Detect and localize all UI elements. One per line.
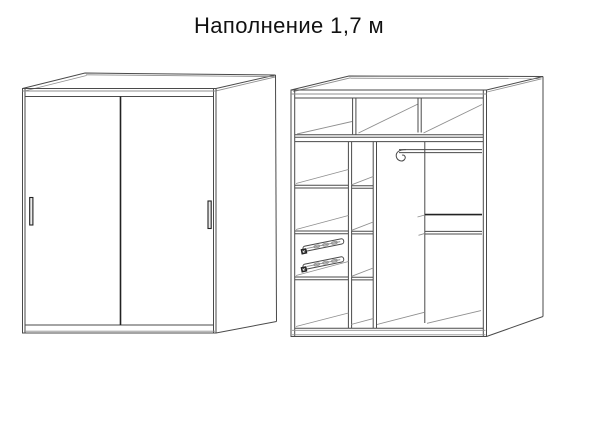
sliding-door-right <box>121 97 214 326</box>
hanging-rod <box>396 150 482 161</box>
top-divider-1 <box>353 98 356 135</box>
floor-lines <box>296 311 481 327</box>
diagram-canvas: Наполнение 1,7 м <box>0 0 600 422</box>
sliding-door-left <box>25 97 121 326</box>
rod-hook <box>396 150 406 161</box>
open-wardrobe-carcass <box>291 90 487 337</box>
open-wardrobe <box>291 76 543 337</box>
left-shelf-1 <box>295 170 349 189</box>
middle-shelf-3 <box>352 268 374 280</box>
middle-shelf-1 <box>352 177 374 189</box>
top-divider-2 <box>418 98 421 133</box>
closed-wardrobe-front-frame <box>23 89 217 334</box>
open-wardrobe-side-panel <box>487 77 544 337</box>
middle-shelf-2 <box>352 222 374 234</box>
drawer-slide-1 <box>301 238 345 253</box>
top-shelf <box>295 104 484 142</box>
right-shelf-bottom <box>419 231 483 235</box>
partition-middle <box>373 142 376 328</box>
partition-left <box>348 142 351 328</box>
wardrobe-diagram <box>0 0 600 422</box>
right-door-handle <box>208 201 211 229</box>
closed-wardrobe-side-panel <box>216 75 277 333</box>
right-shelf-top <box>418 215 483 217</box>
left-shelf-2 <box>295 216 349 234</box>
left-door-handle <box>30 198 33 226</box>
closed-wardrobe <box>23 73 277 333</box>
